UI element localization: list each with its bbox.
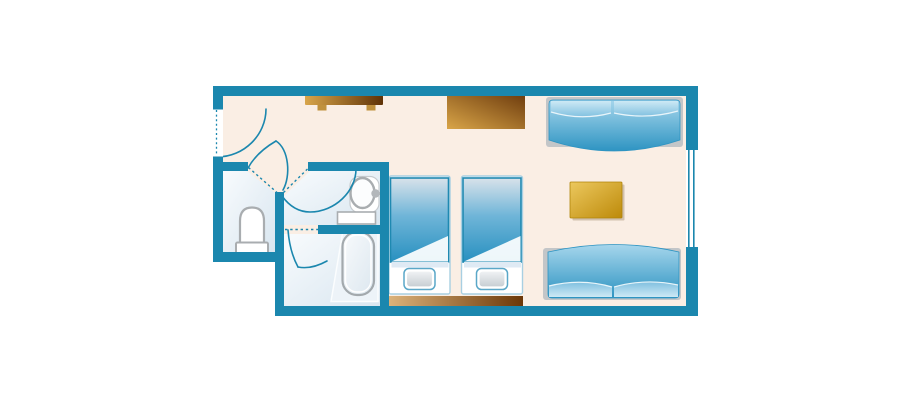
bench-bar bbox=[305, 96, 383, 106]
wall-bath-left bbox=[275, 192, 284, 306]
entrance-gap bbox=[213, 110, 223, 157]
twin-bed-2 bbox=[462, 176, 523, 294]
exterior-notch bbox=[213, 262, 275, 316]
window-cap-bottom bbox=[686, 247, 698, 250]
wall-bath-divider bbox=[318, 225, 389, 234]
twin-bed-1 bbox=[389, 176, 450, 294]
toilet-bowl bbox=[240, 208, 264, 245]
window-cap-top bbox=[686, 147, 698, 150]
dresser bbox=[447, 95, 525, 129]
bench-leg bbox=[367, 105, 376, 111]
headboard-panel bbox=[387, 296, 523, 306]
wall-right-upper bbox=[686, 86, 698, 150]
wall-toilet-top bbox=[213, 162, 248, 171]
toilet bbox=[236, 208, 268, 254]
wall-washroom-top bbox=[308, 162, 389, 171]
window bbox=[686, 147, 698, 250]
wall-top bbox=[213, 86, 698, 96]
toilet-tank bbox=[236, 243, 268, 254]
vanity-counter bbox=[338, 212, 376, 224]
sofa-bed-bottom bbox=[543, 245, 681, 301]
sofa-bed-top bbox=[546, 97, 683, 151]
wall-toilet-bottom bbox=[213, 252, 284, 262]
floorplan-canvas bbox=[0, 0, 910, 400]
wall-bottom bbox=[275, 306, 698, 316]
entrance-opening bbox=[213, 110, 223, 157]
wall-right-lower bbox=[686, 247, 698, 316]
table-top bbox=[570, 182, 622, 218]
floorplan-svg bbox=[0, 0, 910, 400]
side-table bbox=[570, 182, 625, 221]
window-gap bbox=[686, 147, 698, 250]
bench-leg bbox=[318, 105, 327, 111]
